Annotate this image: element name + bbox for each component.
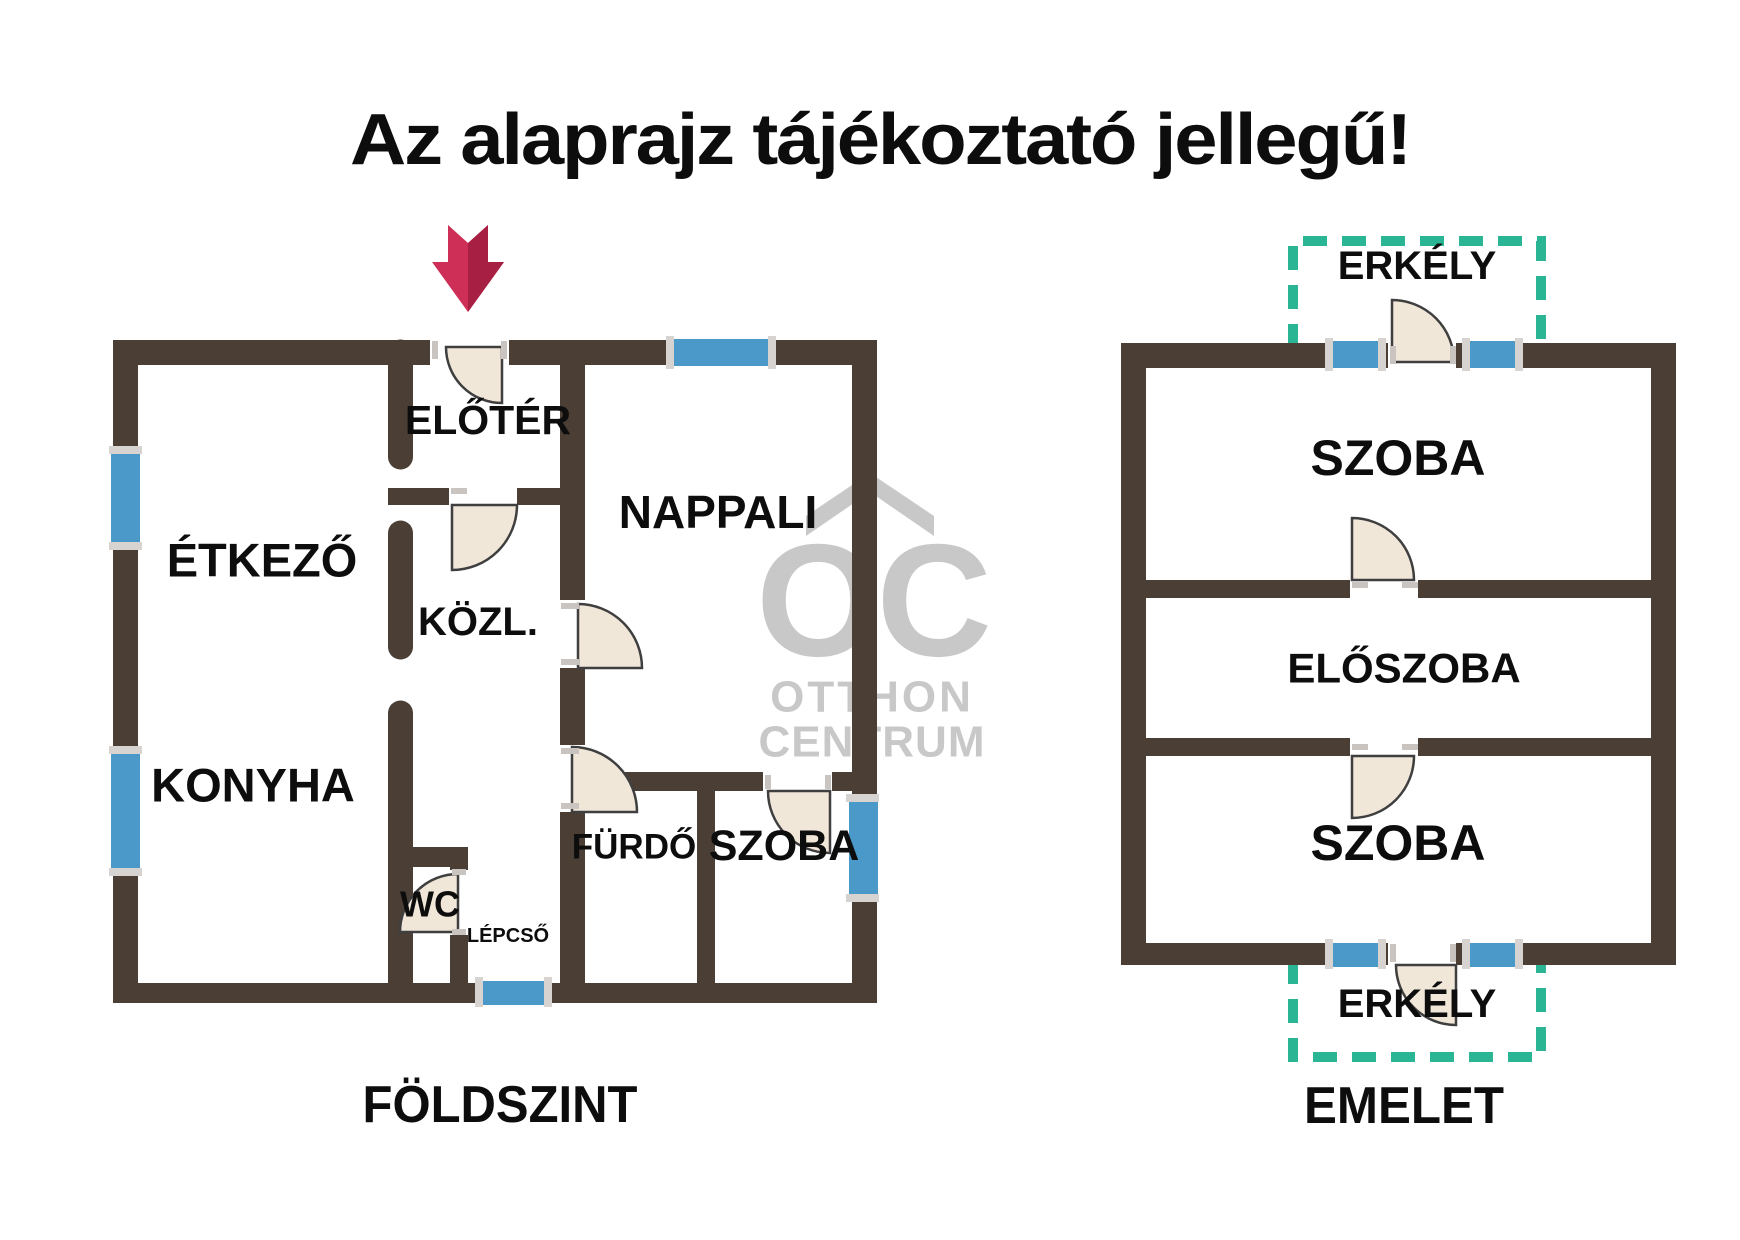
- window-top-left: [1333, 341, 1378, 368]
- entrance-door: [446, 347, 502, 403]
- floor-plan-page: OC OTTHON CENTRUM Az alaprajz tájékoztat…: [0, 0, 1740, 1240]
- window-top-nappali: [674, 339, 768, 366]
- upper-floor-plan: ERKÉLY SZOBA ELŐSZOBA SZOBA ERKÉLY EMELE…: [1121, 241, 1676, 1135]
- room-label-wc: WC: [400, 884, 460, 925]
- floor-plan-canvas: OC OTTHON CENTRUM Az alaprajz tájékoztat…: [0, 0, 1740, 1240]
- szoba-bottom-door: [1352, 756, 1414, 818]
- page-title: Az alaprajz tájékoztató jellegű!: [350, 100, 1410, 180]
- window-bottom-lepcso: [483, 981, 544, 1005]
- entrance-arrow-icon: [432, 225, 504, 312]
- ground-floor-labels: ELŐTÉR ÉTKEZŐ NAPPALI KÖZL. KONYHA FÜRDŐ…: [151, 397, 859, 947]
- window-bottom-right: [1470, 943, 1515, 967]
- ground-floor-title: FÖLDSZINT: [363, 1076, 638, 1134]
- furdo-door: [572, 747, 637, 812]
- room-label-szoba-top: SZOBA: [1311, 430, 1486, 486]
- window-top-right: [1470, 341, 1515, 368]
- room-label-erkely-bottom: ERKÉLY: [1338, 981, 1497, 1026]
- eloter-kozl-door: [452, 505, 517, 570]
- room-label-szoba-ground: SZOBA: [709, 822, 860, 870]
- room-label-kozl: KÖZL.: [418, 599, 538, 644]
- room-label-furdo: FÜRDŐ: [572, 827, 696, 867]
- room-label-etkezo: ÉTKEZŐ: [167, 534, 358, 587]
- window-left-etkezo: [111, 454, 140, 542]
- room-label-eloszoba: ELŐSZOBA: [1287, 645, 1520, 692]
- nappali-door: [578, 604, 642, 668]
- room-label-nappali: NAPPALI: [619, 486, 818, 538]
- room-label-eloter: ELŐTÉR: [405, 397, 571, 443]
- room-label-lepcso: LÉPCSŐ: [467, 924, 549, 947]
- window-left-konyha: [111, 754, 140, 868]
- balcony-top-door: [1392, 300, 1454, 362]
- szoba-top-door: [1352, 518, 1414, 580]
- window-bottom-left: [1333, 943, 1378, 967]
- room-label-konyha: KONYHA: [151, 759, 355, 812]
- room-label-erkely-top: ERKÉLY: [1338, 243, 1497, 288]
- room-label-szoba-bottom: SZOBA: [1311, 815, 1486, 871]
- upper-floor-title: EMELET: [1304, 1077, 1504, 1135]
